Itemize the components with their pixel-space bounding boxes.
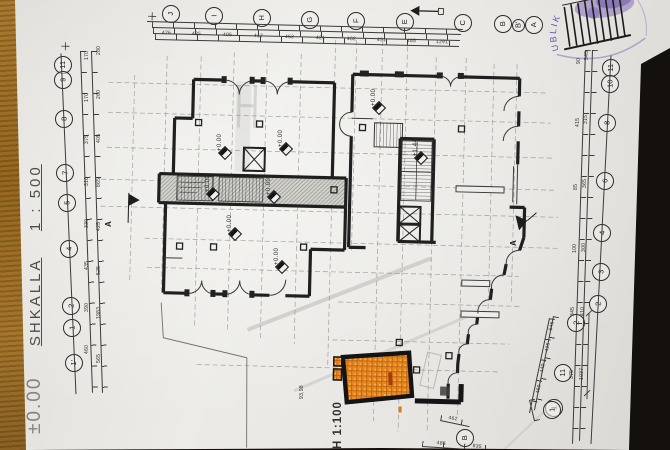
stair-flight xyxy=(219,177,264,202)
grid-bubble-label: B xyxy=(499,21,507,26)
stamp-arc-text: UBLIK xyxy=(546,11,568,53)
dimension-value: 435 xyxy=(84,261,90,270)
dimension-value: 405 xyxy=(96,134,102,143)
dimension-value: 415 xyxy=(575,118,581,127)
grid-bubble: 3 xyxy=(592,263,610,281)
dimension-value: 485 xyxy=(407,38,416,44)
level-marker-value: +0.00 xyxy=(217,134,223,151)
grid-bubble-label: E xyxy=(401,19,409,24)
dimension-value: 170 xyxy=(84,51,90,60)
dimension-value: 85 xyxy=(573,184,579,190)
level-marker-value: +0.00 xyxy=(371,89,377,106)
grid-bubble: A xyxy=(525,16,543,34)
dimension-value: 375 xyxy=(84,135,90,144)
drawing-sheet: UBLIK ±0.00 SHKALLA 1 : 500 H 1:100 JIHG… xyxy=(0,0,670,450)
dimension-value: 390 xyxy=(84,303,90,312)
dimension-value: 410 xyxy=(580,307,586,316)
level-marker-value: +0.00 xyxy=(278,130,284,147)
dimension-value: 485 xyxy=(436,440,446,447)
section-marker-label: A xyxy=(104,221,113,227)
scale-ratio: 1 : 500 xyxy=(27,164,44,231)
sheet-title: ±0.00 SHKALLA 1 : 500 xyxy=(24,104,46,434)
dimension-value: 1983 xyxy=(96,307,102,319)
dimension-value: 90 xyxy=(576,58,582,64)
grid-bubble: B xyxy=(494,15,512,33)
section-marker-label: A xyxy=(509,240,518,246)
grid-bubble-label: 9 xyxy=(59,78,67,82)
level-zero-label: ±0.00 xyxy=(24,377,45,434)
dimension-value: 310 xyxy=(84,177,90,186)
dimension-value: 280 xyxy=(96,46,102,55)
dimension-value: 545 xyxy=(584,51,590,60)
dimension-value: 460 xyxy=(84,345,90,354)
highlighted-room xyxy=(333,351,450,414)
site-boundary xyxy=(158,303,250,448)
dimension-value: 865 xyxy=(96,178,102,187)
svg-text:UBLIK: UBLIK xyxy=(546,11,568,53)
grid-bubble: J xyxy=(162,5,180,23)
dimension-value: 1291 xyxy=(436,39,448,45)
level-marker-value: +0.00 xyxy=(266,178,272,195)
level-marker-value: +0.00 xyxy=(227,215,233,232)
dimension-value: 451 xyxy=(377,37,386,43)
dimension-value: 835 xyxy=(472,443,482,450)
dimension-value: 462 xyxy=(347,36,356,42)
dimension-value: 425 xyxy=(96,222,102,231)
dimension-value: 260 xyxy=(96,90,102,99)
grid-bubble-label: G xyxy=(306,17,314,23)
photo-of-floor-plan: UBLIK ±0.00 SHKALLA 1 : 500 H 1:100 JIHG… xyxy=(0,0,670,450)
grid-bubble-label: 11 xyxy=(559,369,567,377)
dimension-value: 170 xyxy=(84,93,90,102)
dimension-value: 417 xyxy=(254,33,263,39)
dimension-value: 315 xyxy=(583,115,589,124)
dimension-value: 452 xyxy=(285,34,294,40)
dimension-value: 100 xyxy=(572,244,578,253)
grid-bubble-label: C xyxy=(459,20,467,25)
ink-stamp: UBLIK xyxy=(546,0,658,70)
sheet-content: UBLIK ±0.00 SHKALLA 1 : 500 H 1:100 JIHG… xyxy=(0,0,670,450)
dimension-value: 565 xyxy=(96,354,102,363)
level-marker-value: +0.00 xyxy=(205,175,211,192)
grid-bubble-label: J xyxy=(167,12,175,16)
grid-bubble-label: H xyxy=(258,15,266,20)
scale-name: SHKALLA xyxy=(27,258,44,347)
dimension-value: 345 xyxy=(570,307,576,316)
plan-scale-label: H 1:100 xyxy=(332,369,344,449)
dimension-value: 405 xyxy=(223,32,232,38)
level-marker-value: +1.44 xyxy=(413,139,419,156)
stair-flight xyxy=(374,123,403,148)
level-marker-value: +0.00 xyxy=(274,248,280,265)
grid-bubble: 9 xyxy=(54,71,72,89)
grid-bubble-label: B' xyxy=(514,22,522,28)
dimension-value: 1037 xyxy=(579,368,585,380)
dimension-value: 435 xyxy=(192,31,201,37)
dimension-value: 375 xyxy=(569,370,575,379)
dimension-value: 525 xyxy=(96,266,102,275)
grid-bubble: 1 xyxy=(543,401,561,419)
grid-bubble-label: F xyxy=(352,19,360,24)
dimension-value: 330 xyxy=(84,219,90,228)
dimension-value: 476 xyxy=(162,30,171,36)
dimension-value: 300 xyxy=(581,243,587,252)
dimension-value: 421 xyxy=(316,35,325,41)
grid-bubble-label: I xyxy=(210,15,218,17)
dimension-value: 365 xyxy=(582,179,588,188)
grid-bubble-label: 1 xyxy=(548,408,556,412)
grid-bubble-label: A xyxy=(530,22,538,27)
grid-bubble: B' xyxy=(512,19,525,32)
grid-bubble-label: B xyxy=(461,435,469,440)
dimension-value: 93,98 xyxy=(299,385,305,399)
